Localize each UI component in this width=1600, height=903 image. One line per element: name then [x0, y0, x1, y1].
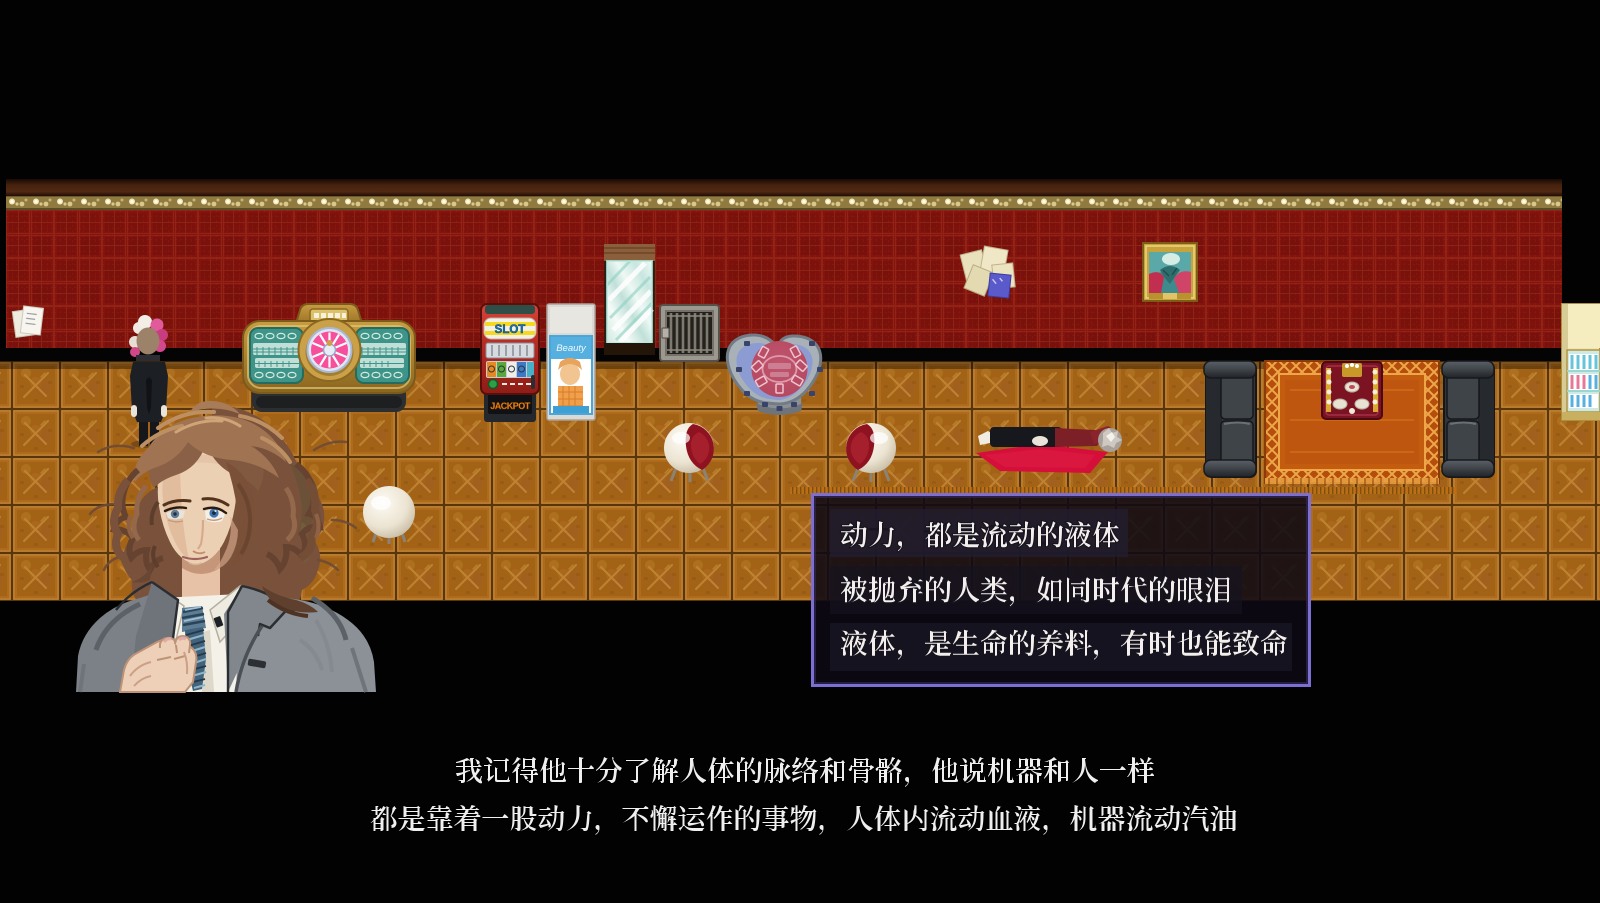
svg-text:JACKPOT: JACKPOT: [490, 401, 531, 411]
svg-text:Beauty: Beauty: [556, 343, 587, 354]
svg-text:SLOT: SLOT: [495, 324, 526, 336]
